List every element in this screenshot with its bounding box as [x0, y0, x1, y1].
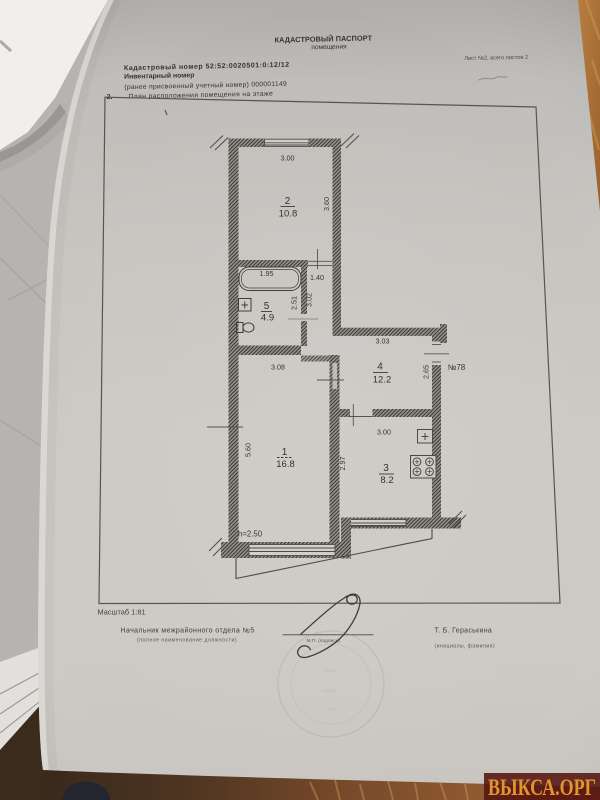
- svg-text:4: 4: [377, 362, 383, 373]
- svg-text:помещения: помещения: [311, 44, 347, 52]
- svg-text:(инициалы, фамилия): (инициалы, фамилия): [435, 644, 495, 650]
- svg-text:3.00: 3.00: [281, 154, 295, 163]
- svg-text:Инвентарный номер: Инвентарный номер: [124, 71, 194, 80]
- svg-text:(полное наименование должности: (полное наименование должности): [137, 638, 237, 644]
- svg-text:16.8: 16.8: [276, 459, 295, 470]
- svg-text:Начальник межрайонного отдела: Начальник межрайонного отдела №5: [121, 627, 255, 635]
- svg-text:2.65: 2.65: [422, 365, 431, 379]
- svg-text:ВЫКСА.ОРГ: ВЫКСА.ОРГ: [488, 775, 596, 800]
- svg-text:1.40: 1.40: [310, 273, 324, 282]
- svg-text:Т. Б. Гераськина: Т. Б. Гераськина: [435, 628, 493, 635]
- svg-text:10.8: 10.8: [279, 209, 298, 220]
- svg-text:8.2: 8.2: [380, 475, 393, 486]
- svg-text:3: 3: [383, 463, 389, 474]
- svg-text:№78: №78: [448, 363, 466, 372]
- svg-text:Масштаб 1:81: Масштаб 1:81: [98, 608, 146, 617]
- svg-text:4.9: 4.9: [261, 313, 274, 324]
- svg-text:номер: номер: [322, 688, 336, 693]
- svg-text:2: 2: [285, 196, 291, 207]
- svg-text:3.00: 3.00: [377, 428, 391, 437]
- svg-text:5: 5: [264, 301, 270, 312]
- svg-text:1.95: 1.95: [260, 269, 274, 278]
- svg-text:3.60: 3.60: [322, 197, 331, 211]
- svg-text:2.97: 2.97: [338, 457, 347, 471]
- svg-text:пятый: пятый: [324, 667, 337, 673]
- svg-text:3.02: 3.02: [305, 293, 314, 307]
- svg-text:1: 1: [282, 447, 288, 458]
- svg-text:12.2: 12.2: [373, 375, 392, 386]
- svg-text:отдел: отдел: [325, 706, 337, 711]
- svg-text:h=2.50: h=2.50: [238, 530, 263, 539]
- svg-text:3.03: 3.03: [376, 337, 390, 346]
- svg-text:5.60: 5.60: [244, 443, 253, 457]
- svg-text:2.51: 2.51: [290, 296, 299, 310]
- svg-text:3.08: 3.08: [271, 363, 285, 372]
